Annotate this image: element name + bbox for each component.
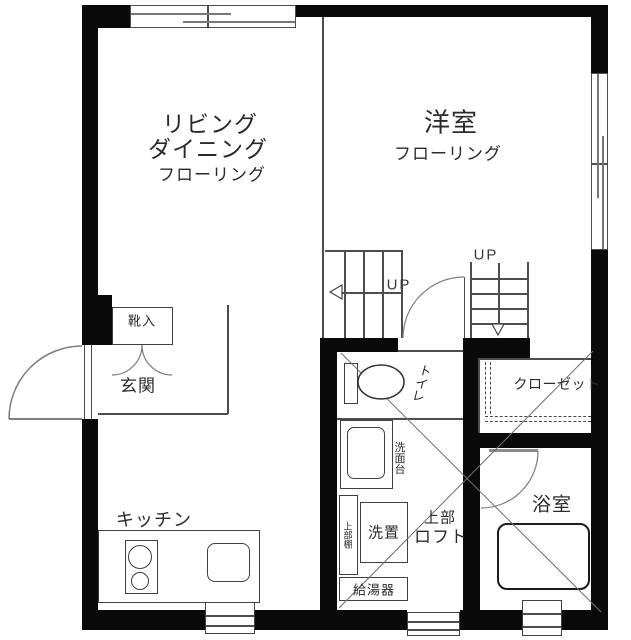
floor-plan: リビング ダイニング フローリング 洋室 フローリング 玄関 靴入 キッチン U… — [0, 0, 631, 640]
label-western-room: 洋室 — [424, 103, 478, 140]
window-top — [130, 5, 296, 28]
washstand-basin — [347, 427, 385, 479]
entrance-door-arc — [9, 346, 82, 419]
bath-door-leaf — [489, 449, 538, 452]
wall-left-lower — [82, 419, 98, 630]
toilet-door-threshold — [398, 350, 463, 352]
line-entrance-step — [98, 413, 228, 415]
stair-right-rail-2 — [527, 262, 529, 338]
wall-bottom-2 — [255, 610, 407, 630]
closet-outline-top — [478, 358, 591, 360]
entrance-jamb-1 — [84, 345, 85, 419]
wall-right-upper — [591, 5, 608, 74]
label-living-floor: フローリング — [158, 161, 266, 186]
wall-mid-vertical — [320, 338, 337, 610]
label-western-floor: フローリング — [394, 140, 502, 165]
stair-left-edge — [401, 250, 403, 338]
label-water-heater: 給湯器 — [353, 580, 395, 599]
label-up-left: UP — [387, 277, 412, 294]
wall-toilet-top — [325, 338, 398, 352]
label-washstand: 洗面台 — [391, 442, 407, 475]
wall-bottom-4 — [562, 610, 608, 630]
exterior-step-heater — [407, 612, 460, 636]
wall-entrance-bump — [82, 295, 112, 345]
entrance-jamb-2 — [91, 345, 92, 419]
shoe-cabinet-door-arc-left — [112, 345, 142, 375]
shoe-cabinet-door-arc-right — [142, 345, 172, 375]
toilet-bowl — [358, 365, 404, 399]
kitchen-sink — [207, 543, 250, 582]
closet-outline-left — [478, 358, 480, 433]
label-living-line2: ダイニング — [148, 130, 268, 164]
label-washer-space: 洗置 — [368, 522, 400, 543]
stove-burner-large — [128, 545, 152, 569]
label-bathroom: 浴室 — [532, 490, 572, 517]
stair-left-tread-1 — [344, 250, 346, 338]
wall-top — [296, 5, 608, 17]
hall-door-arc — [403, 277, 464, 338]
label-shoe-cabinet: 靴入 — [128, 311, 156, 330]
closet-dash-horizontal-1 — [485, 416, 591, 417]
label-closet: クローゼット — [514, 374, 601, 394]
stair-left-tread-2 — [363, 250, 365, 338]
exterior-step-bathroom — [522, 600, 562, 636]
exterior-step-kitchen — [205, 602, 255, 634]
stove-burner-small — [131, 572, 149, 590]
bathroom-door-arc — [481, 451, 538, 508]
hall-door-leaf — [464, 277, 466, 338]
label-kitchen: キッチン — [116, 506, 192, 532]
label-upper-shelf: 上部棚 — [342, 522, 355, 549]
closet-dash-vertical-2 — [490, 362, 491, 414]
stair-right-arrow-line — [498, 263, 500, 327]
label-upper-loft-line2: ロフト — [414, 523, 468, 548]
label-entrance: 玄関 — [120, 372, 156, 397]
closet-dash-horizontal-2 — [485, 421, 591, 422]
bathtub — [497, 523, 590, 590]
wall-closet-bottom — [478, 433, 608, 448]
closet-dash-vertical-1 — [485, 362, 486, 414]
label-toilet: トイレ — [407, 362, 435, 405]
wall-bottom-1 — [82, 610, 205, 630]
label-up-right: UP — [474, 247, 499, 264]
stair-right-rail-1 — [470, 262, 472, 338]
window-right — [591, 73, 608, 250]
stair-left-tread-3 — [382, 250, 384, 338]
line-ld-partition — [322, 17, 324, 338]
wall-left-upper — [82, 5, 98, 345]
toilet-tank — [344, 363, 358, 404]
wall-bottom-3 — [460, 610, 522, 630]
line-entrance-vertical — [227, 305, 229, 414]
